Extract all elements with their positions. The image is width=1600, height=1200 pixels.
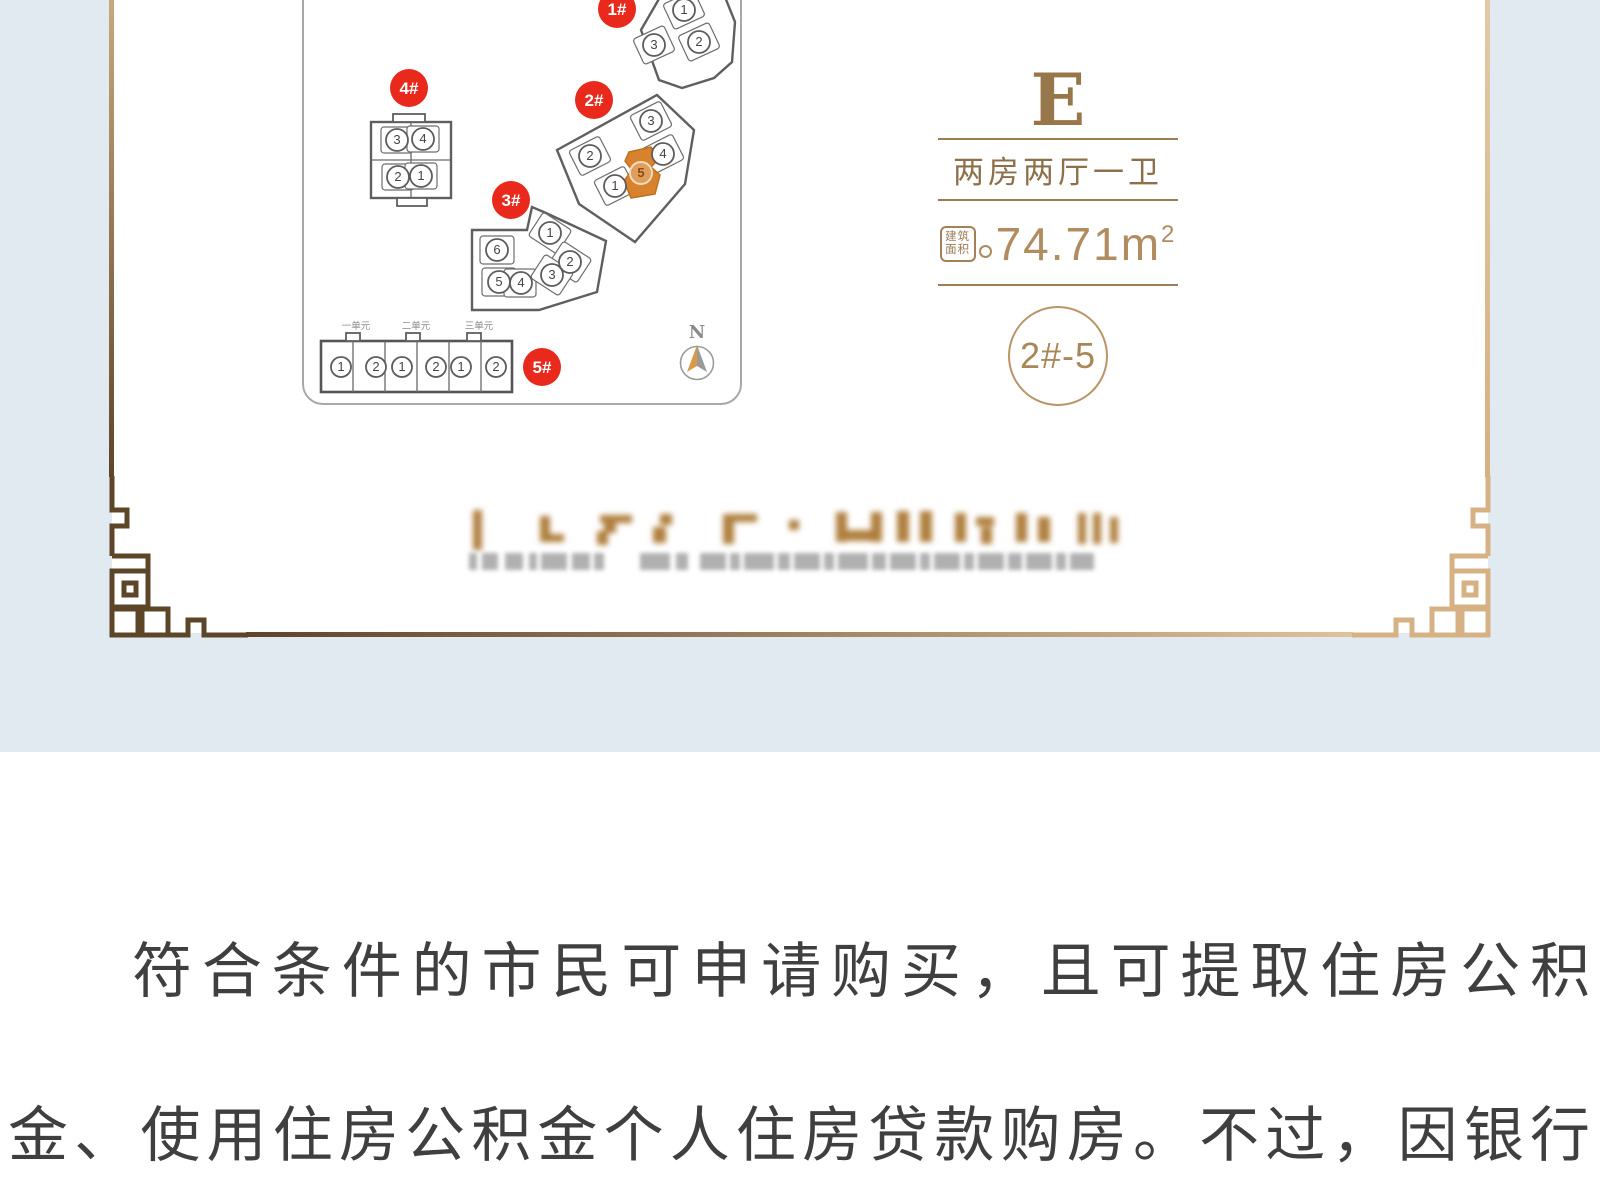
svg-text:6: 6 <box>493 242 500 257</box>
area-value: 74.71m2 <box>996 217 1177 271</box>
building-badge-4: 4# <box>390 69 428 107</box>
area-row: 建筑 面积 74.71m2 <box>940 215 1177 273</box>
svg-text:4: 4 <box>517 275 524 290</box>
svg-text:3: 3 <box>393 132 400 147</box>
svg-text:1: 1 <box>611 178 618 193</box>
unit-type-letter: E <box>1031 62 1086 138</box>
svg-text:5: 5 <box>495 274 502 289</box>
svg-text:2: 2 <box>432 359 439 374</box>
svg-text:2: 2 <box>394 169 401 184</box>
svg-text:2: 2 <box>372 359 379 374</box>
building-4: 3 4 2 1 <box>371 114 451 206</box>
article-page: 1 3 2 3 2 4 1 5 <box>0 0 1600 1200</box>
building-5: 一单元 二单元 三单元 1 2 1 2 1 2 <box>321 320 512 392</box>
svg-text:3: 3 <box>647 113 654 128</box>
svg-text:4#: 4# <box>400 79 419 98</box>
svg-text:二单元: 二单元 <box>402 320 431 332</box>
frame-left-border <box>109 0 114 477</box>
site-plan: 1 3 2 3 2 4 1 5 <box>299 0 747 408</box>
svg-text:2: 2 <box>586 148 593 163</box>
building-badge-3: 3# <box>492 181 530 219</box>
svg-text:2#: 2# <box>585 91 604 110</box>
svg-text:4: 4 <box>659 146 666 161</box>
svg-text:4: 4 <box>419 131 426 146</box>
frame-right-border <box>1485 0 1490 477</box>
svg-text:3#: 3# <box>502 191 521 210</box>
frame-corner-ornament-left <box>106 476 248 640</box>
svg-text:1: 1 <box>457 359 464 374</box>
svg-text:2: 2 <box>492 359 499 374</box>
floor-area-badge-icon: 建筑 面积 <box>940 226 976 262</box>
frame-corner-ornament-right <box>1352 476 1494 640</box>
svg-text:3: 3 <box>650 37 657 52</box>
unit-layout-text: 两房两厅一卫 <box>953 147 1163 192</box>
svg-text:N: N <box>689 322 705 343</box>
svg-text:1: 1 <box>398 359 405 374</box>
svg-text:2: 2 <box>566 254 573 269</box>
article-body: 符合条件的市民可申请购买，且可提取住房公积 金、使用住房公积金个人住房贷款购房。… <box>0 752 1600 1200</box>
svg-text:一单元: 一单元 <box>342 320 371 332</box>
svg-text:1: 1 <box>337 359 344 374</box>
svg-text:1: 1 <box>546 225 553 240</box>
svg-text:1: 1 <box>680 2 687 17</box>
unit-info-panel: E 两房两厅一卫 建筑 面积 74.71m2 2#-5 <box>935 62 1181 406</box>
article-line: 金、使用住房公积金个人住房贷款购房。不过，因银行 <box>8 1084 1592 1188</box>
divider <box>938 138 1178 140</box>
unit-code-circle: 2#-5 <box>1008 306 1108 406</box>
svg-text:1: 1 <box>417 168 424 183</box>
svg-text:三单元: 三单元 <box>465 320 494 332</box>
svg-text:5: 5 <box>637 165 644 180</box>
svg-text:2: 2 <box>695 34 702 49</box>
divider <box>938 284 1178 286</box>
svg-text:1#: 1# <box>608 0 627 19</box>
divider <box>938 199 1178 201</box>
svg-text:3: 3 <box>548 267 555 282</box>
approx-icon <box>979 245 992 258</box>
listing-poster: 1 3 2 3 2 4 1 5 <box>0 0 1600 752</box>
frame-bottom-border <box>246 632 1353 637</box>
article-line: 符合条件的市民可申请购买，且可提取住房公积 <box>8 920 1592 1024</box>
building-badge-5: 5# <box>523 348 561 386</box>
building-badge-2: 2# <box>575 81 613 119</box>
svg-text:5#: 5# <box>533 358 552 377</box>
